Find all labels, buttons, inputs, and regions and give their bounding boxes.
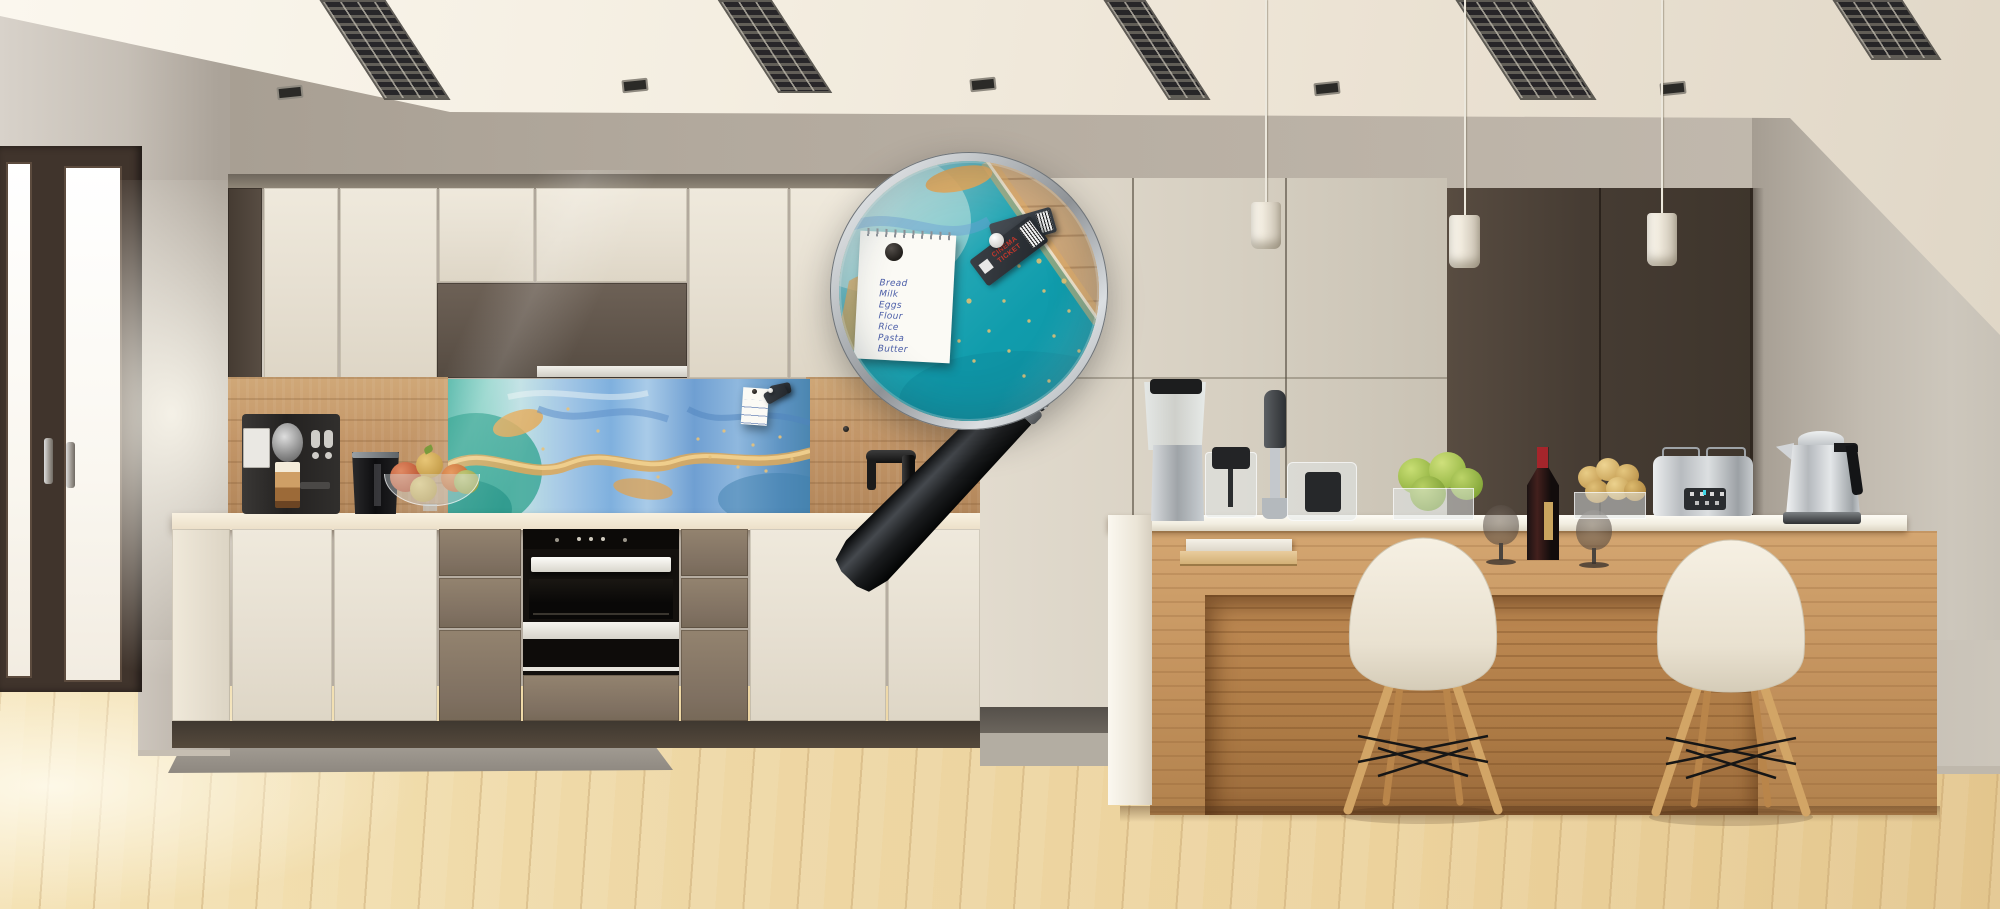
shopping-list-text: Bread Milk Eggs Flour Rice Pasta Butter <box>856 232 955 357</box>
cinema-tickets: CINEMA TICKET <box>971 213 1071 313</box>
base-cabinet-door <box>334 529 437 721</box>
pendant-light <box>1251 202 1281 249</box>
lemon-glass-bowl <box>1574 492 1646 519</box>
upper-cabinet-door <box>340 188 437 378</box>
brew-head <box>272 423 303 462</box>
french-window <box>0 146 142 692</box>
blender-base <box>1151 445 1204 521</box>
blender-lid <box>1150 379 1202 394</box>
black-kettle-rim <box>352 452 399 458</box>
base-drawer <box>523 675 679 721</box>
recessed-spotlight <box>1313 81 1340 97</box>
apple-glass-bowl <box>1393 488 1474 520</box>
magnifier-lens-view: Bread Milk Eggs Flour Rice Pasta Butter … <box>839 161 1099 421</box>
stick-blender-shaft <box>1270 448 1280 498</box>
base-drawer <box>681 578 748 628</box>
cabinet-soffit-shadow <box>228 174 980 189</box>
mini-magnet <box>768 388 773 393</box>
water-tank <box>243 428 270 468</box>
upper-cabinet-side <box>228 188 262 378</box>
built-in-oven <box>523 529 679 675</box>
pendant-cord <box>1265 0 1267 204</box>
pendant-light <box>1449 215 1480 268</box>
wine-glass <box>1483 505 1519 545</box>
black-magnet <box>885 243 903 261</box>
window-handle <box>44 438 53 484</box>
upper-cabinet-door <box>536 188 687 282</box>
oven-control-icons <box>589 537 593 541</box>
appliance-garage-band <box>980 707 1108 733</box>
stick-blender-foot <box>1262 498 1288 519</box>
oven-drawer-handle <box>523 622 679 639</box>
extractor-hood-strip <box>537 366 687 377</box>
window-pane-right <box>64 166 122 682</box>
oven-glass-line <box>533 613 669 615</box>
book-on-ledge <box>1186 539 1292 551</box>
wine-glass-stem <box>1499 543 1503 560</box>
pendant-cord <box>1661 0 1663 215</box>
base-drawer <box>681 529 748 576</box>
base-drawer <box>439 529 521 576</box>
magnifier-lens: Bread Milk Eggs Flour Rice Pasta Butter … <box>830 152 1108 430</box>
base-cabinet-door <box>232 529 332 721</box>
blender-parts <box>1305 472 1341 512</box>
wine-cap <box>1537 447 1548 468</box>
wine-label <box>1544 502 1553 540</box>
window-handle <box>66 442 75 488</box>
oven-drawer <box>523 639 679 667</box>
drip-tray <box>300 482 330 489</box>
pendant-cord <box>1464 0 1466 217</box>
upper-cabinet-brown-box <box>437 283 687 378</box>
appliance-garage <box>980 733 1108 766</box>
upper-cabinet-door <box>689 188 788 378</box>
base-drawer <box>439 630 521 721</box>
mini-magnet <box>843 426 849 432</box>
oven-control-panel <box>523 529 679 549</box>
base-cabinet-end-panel <box>172 529 230 721</box>
upper-cabinet-door <box>439 188 534 282</box>
window-pane-left <box>6 162 32 678</box>
list-item: Butter <box>878 344 952 357</box>
machine-buttons <box>311 430 320 448</box>
white-magnet <box>989 233 1004 248</box>
chopper-shaft <box>1228 469 1233 507</box>
kitchen-scene: Bread Milk Eggs Flour Rice Pasta Butter … <box>0 0 2000 909</box>
eames-chair <box>1328 524 1518 824</box>
ticket-qr <box>978 259 993 274</box>
oven-trim <box>523 667 679 671</box>
recessed-spotlight <box>276 85 303 101</box>
toe-kick <box>172 721 980 748</box>
island-end-frame <box>1108 515 1152 805</box>
recessed-spotlight <box>969 77 996 93</box>
mini-magnet <box>752 389 757 394</box>
faucet-spout <box>867 460 876 490</box>
espresso-machine <box>242 414 340 514</box>
machine-buttons <box>312 452 319 459</box>
toaster-display <box>1703 490 1706 495</box>
recessed-spotlight <box>1659 81 1686 97</box>
upper-cabinet-door <box>264 188 338 378</box>
kettle-window <box>374 464 381 506</box>
oven-handle <box>531 557 671 572</box>
eames-chair <box>1636 526 1826 826</box>
bowl-stem <box>423 504 437 511</box>
base-drawer <box>681 630 748 721</box>
shopping-list-notepad: Bread Milk Eggs Flour Rice Pasta Butter <box>854 231 957 364</box>
toaster-control-panel <box>1684 488 1726 510</box>
recessed-spotlight <box>621 78 648 94</box>
latte-glass <box>275 462 300 508</box>
chopper-lid <box>1212 447 1250 469</box>
wine-glass-foot <box>1486 559 1516 565</box>
kettle-base <box>1783 512 1861 524</box>
toaster-buttons <box>1690 492 1694 496</box>
stick-blender-handle <box>1264 390 1286 448</box>
pendant-light <box>1647 213 1677 266</box>
wine-glass-foot <box>1579 562 1609 568</box>
base-drawer <box>439 578 521 628</box>
book-on-ledge <box>1180 551 1297 566</box>
